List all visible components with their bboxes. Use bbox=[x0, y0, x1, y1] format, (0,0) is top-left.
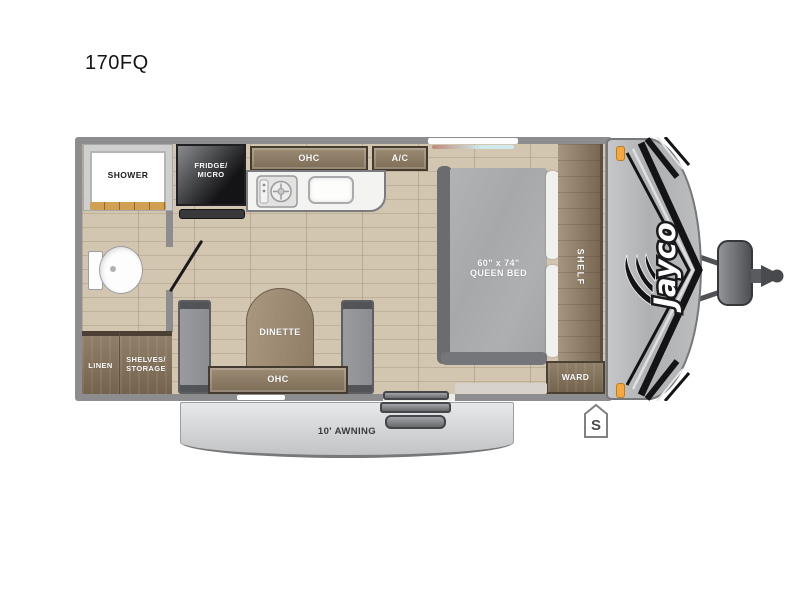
marker-light-top bbox=[616, 146, 625, 161]
linen-label: LINEN bbox=[82, 362, 119, 371]
dinette-bench-left bbox=[178, 300, 211, 394]
stabilizer-marker-letter: S bbox=[591, 417, 601, 434]
shelves-label-line2: STORAGE bbox=[120, 365, 172, 374]
overhead-cabinet-dinette: OHC bbox=[208, 366, 348, 394]
toilet-icon bbox=[99, 246, 143, 294]
hitch-ball bbox=[771, 270, 784, 283]
fridge-label-line2: MICRO bbox=[178, 171, 244, 180]
shelf-label: SHELF bbox=[575, 239, 585, 296]
bed-blanket-edge-bottom bbox=[441, 352, 547, 365]
bathroom-wall-lower bbox=[166, 290, 173, 332]
stove-icon bbox=[256, 175, 298, 208]
wall-vent bbox=[237, 395, 285, 400]
awning-label: 10' AWNING bbox=[181, 427, 513, 438]
shower-stall: SHOWER bbox=[84, 145, 172, 210]
kitchen-ohc-label: OHC bbox=[252, 153, 366, 163]
page-title: 170FQ bbox=[85, 52, 149, 75]
dinette-ohc-label: OHC bbox=[210, 374, 346, 384]
bed-size-label: 60" x 74" bbox=[450, 258, 547, 268]
hitch-neck bbox=[751, 269, 761, 283]
ac-unit: A/C bbox=[372, 146, 428, 171]
floorplan-page: 170FQ SHOWER FRIDGE/ MICRO OHC A/C bbox=[0, 0, 800, 600]
shower-ledge bbox=[90, 202, 166, 210]
entry-steps-bottom bbox=[385, 415, 446, 429]
propane-tank bbox=[718, 241, 752, 305]
ac-label: A/C bbox=[374, 153, 426, 163]
awning: 10' AWNING bbox=[180, 402, 514, 458]
entry-steps-middle bbox=[380, 402, 451, 413]
entry-threshold bbox=[455, 383, 547, 394]
ward-label: WARD bbox=[548, 373, 603, 383]
fridge-micro-cabinet: FRIDGE/ MICRO bbox=[176, 144, 246, 206]
wardrobe-cabinet: WARD bbox=[546, 361, 605, 394]
linen-cabinet: LINEN bbox=[82, 331, 120, 394]
dinette-table: DINETTE bbox=[246, 288, 314, 368]
bedroom-window-shade bbox=[432, 145, 514, 149]
shower-label: SHOWER bbox=[90, 171, 166, 181]
dinette-label: DINETTE bbox=[247, 327, 313, 337]
stabilizer-marker: S bbox=[584, 404, 608, 438]
entry-steps-top bbox=[383, 391, 449, 400]
overhead-cabinet-kitchen: OHC bbox=[250, 146, 368, 171]
bed-name-label: QUEEN BED bbox=[450, 268, 547, 278]
shelves-storage-cabinet: SHELVES/ STORAGE bbox=[120, 331, 172, 394]
sink-icon bbox=[308, 176, 354, 204]
bedroom-window bbox=[428, 138, 518, 144]
jayco-logo: Jayco bbox=[648, 222, 682, 313]
toilet-flush-dot bbox=[110, 266, 116, 272]
fridge-handle bbox=[179, 209, 245, 219]
marker-light-bottom bbox=[616, 383, 625, 398]
front-cap: Jayco bbox=[605, 137, 705, 401]
